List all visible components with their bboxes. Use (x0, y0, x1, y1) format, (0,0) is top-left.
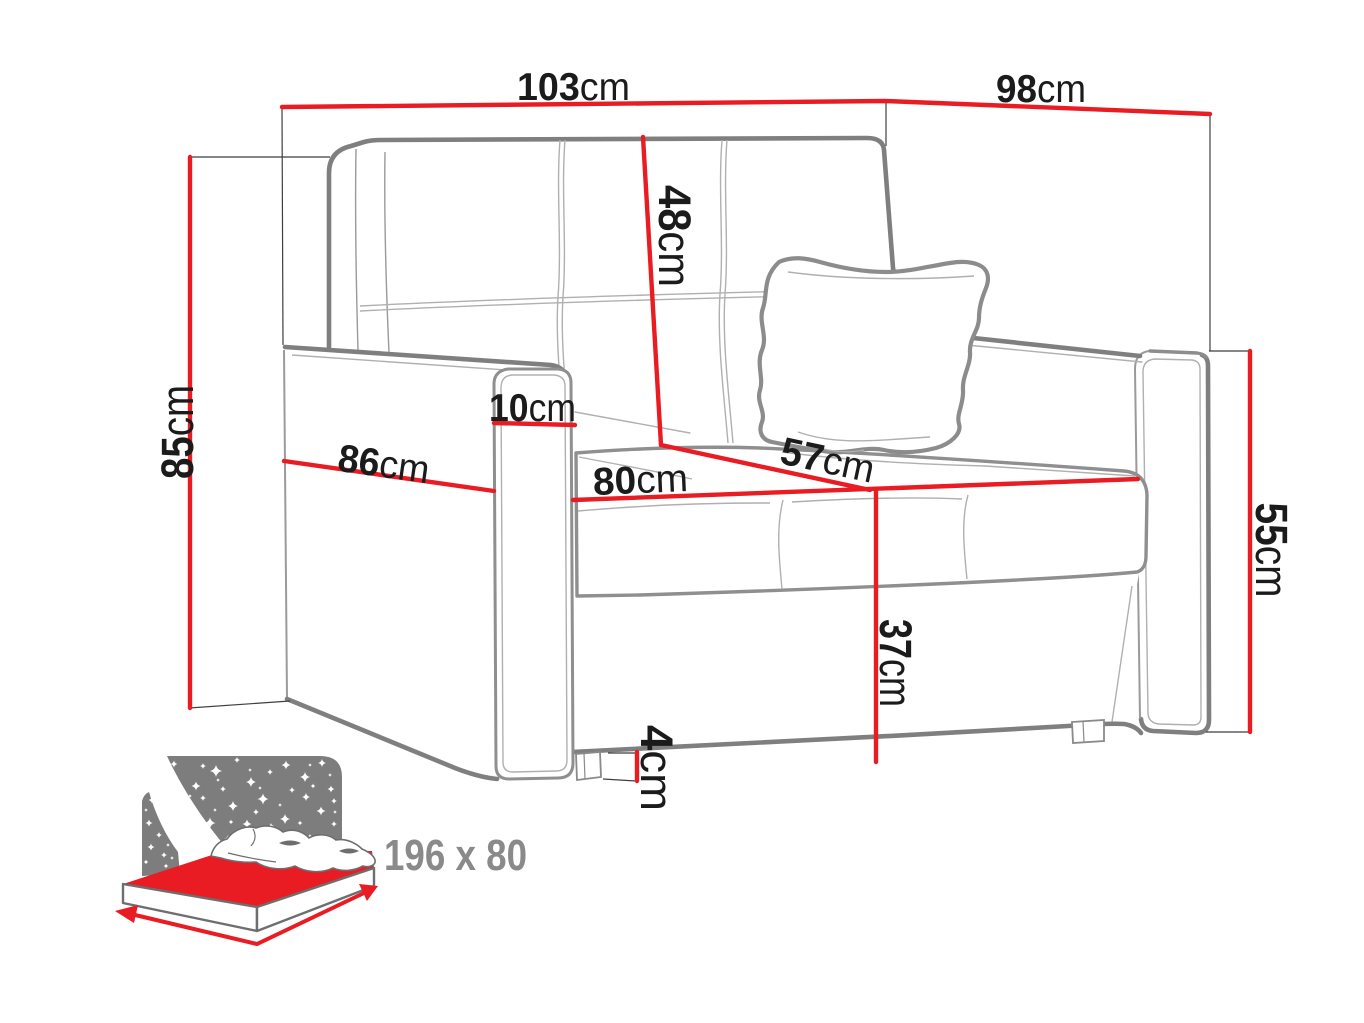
svg-text:80cm: 80cm (592, 457, 689, 504)
svg-text:10cm: 10cm (489, 387, 576, 430)
svg-text:196 x 80: 196 x 80 (384, 831, 527, 880)
svg-text:85cm: 85cm (152, 385, 203, 479)
svg-text:103cm: 103cm (517, 66, 630, 109)
svg-text:4cm: 4cm (631, 725, 682, 811)
svg-text:98cm: 98cm (996, 68, 1086, 111)
svg-text:37cm: 37cm (870, 619, 921, 707)
svg-text:55cm: 55cm (1246, 503, 1297, 598)
svg-text:48cm: 48cm (649, 185, 700, 287)
